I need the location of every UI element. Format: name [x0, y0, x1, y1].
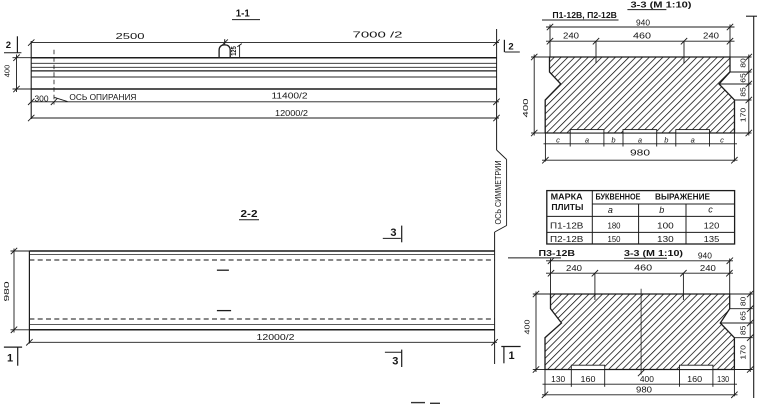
svg-text:120: 120	[704, 221, 720, 230]
svg-text:180: 180	[608, 221, 622, 230]
svg-text:12000/2: 12000/2	[257, 333, 296, 342]
svg-text:МАРКА: МАРКА	[551, 192, 583, 202]
svg-text:3: 3	[392, 355, 398, 367]
svg-text:130: 130	[717, 375, 729, 384]
svg-text:ОСЬ СИММЕТРИИ: ОСЬ СИММЕТРИИ	[494, 160, 503, 224]
svg-text:2-2: 2-2	[241, 209, 259, 220]
svg-text:240: 240	[563, 31, 580, 40]
svg-text:7000 /2: 7000 /2	[353, 31, 404, 40]
svg-text:80: 80	[739, 297, 748, 307]
svg-text:2: 2	[508, 42, 513, 53]
svg-text:1: 1	[508, 350, 514, 362]
svg-text:ВЫРАЖЕНИЕ: ВЫРАЖЕНИЕ	[655, 192, 710, 202]
svg-text:130: 130	[657, 235, 674, 244]
svg-text:135: 135	[704, 235, 720, 244]
svg-text:2500: 2500	[116, 32, 146, 41]
svg-text:1-1: 1-1	[236, 9, 250, 20]
svg-text:125: 125	[231, 46, 238, 56]
svg-text:3: 3	[390, 227, 396, 239]
svg-text:с: с	[556, 135, 560, 144]
svg-text:400: 400	[640, 375, 655, 384]
svg-text:12000/2: 12000/2	[275, 109, 309, 118]
svg-text:85: 85	[739, 326, 748, 336]
svg-text:11400/2: 11400/2	[272, 92, 309, 101]
svg-text:65: 65	[738, 73, 747, 83]
svg-text:ОСЬ ОПИРАНИЯ: ОСЬ ОПИРАНИЯ	[69, 93, 136, 102]
svg-text:400: 400	[523, 320, 532, 335]
svg-text:980: 980	[630, 148, 650, 158]
svg-text:с: с	[708, 205, 713, 215]
svg-text:65: 65	[739, 311, 748, 321]
svg-text:85: 85	[738, 87, 747, 97]
svg-text:3-3 (М 1:10): 3-3 (М 1:10)	[624, 248, 683, 258]
svg-text:80: 80	[738, 58, 747, 68]
svg-text:П3-12В: П3-12В	[539, 248, 576, 258]
svg-text:b: b	[659, 205, 664, 215]
svg-text:а: а	[608, 205, 613, 215]
svg-text:160: 160	[581, 375, 597, 384]
svg-text:а: а	[585, 135, 589, 144]
svg-text:160: 160	[687, 375, 703, 384]
svg-text:100: 100	[657, 221, 674, 230]
svg-text:b: b	[664, 135, 668, 144]
svg-text:а: а	[691, 135, 695, 144]
svg-text:П1-12В: П1-12В	[550, 221, 583, 230]
svg-text:1: 1	[7, 352, 13, 364]
svg-text:940: 940	[698, 251, 713, 260]
svg-text:П1-12В, П2-12В: П1-12В, П2-12В	[552, 10, 617, 20]
svg-text:170: 170	[739, 345, 748, 360]
svg-text:П2-12В: П2-12В	[550, 235, 583, 244]
svg-text:940: 940	[636, 18, 651, 27]
svg-text:170: 170	[738, 108, 747, 123]
svg-text:с: с	[720, 135, 724, 144]
svg-text:b: b	[611, 135, 615, 144]
svg-text:400: 400	[521, 99, 530, 118]
svg-text:130: 130	[551, 375, 566, 384]
svg-text:400: 400	[3, 65, 12, 78]
svg-text:БУКВЕННОЕ: БУКВЕННОЕ	[596, 192, 641, 202]
svg-text:240: 240	[700, 264, 717, 273]
svg-text:240: 240	[703, 31, 720, 40]
svg-text:300: 300	[35, 95, 50, 104]
svg-text:460: 460	[634, 264, 653, 273]
svg-text:3-3 (М 1:10): 3-3 (М 1:10)	[631, 0, 692, 10]
svg-text:460: 460	[633, 31, 652, 40]
svg-text:150: 150	[608, 235, 622, 244]
svg-text:980: 980	[636, 385, 653, 394]
svg-text:а: а	[638, 135, 642, 144]
svg-text:240: 240	[566, 264, 583, 273]
svg-text:ПЛИТЫ: ПЛИТЫ	[551, 202, 583, 212]
svg-text:980: 980	[2, 282, 11, 302]
svg-text:2: 2	[6, 40, 11, 51]
